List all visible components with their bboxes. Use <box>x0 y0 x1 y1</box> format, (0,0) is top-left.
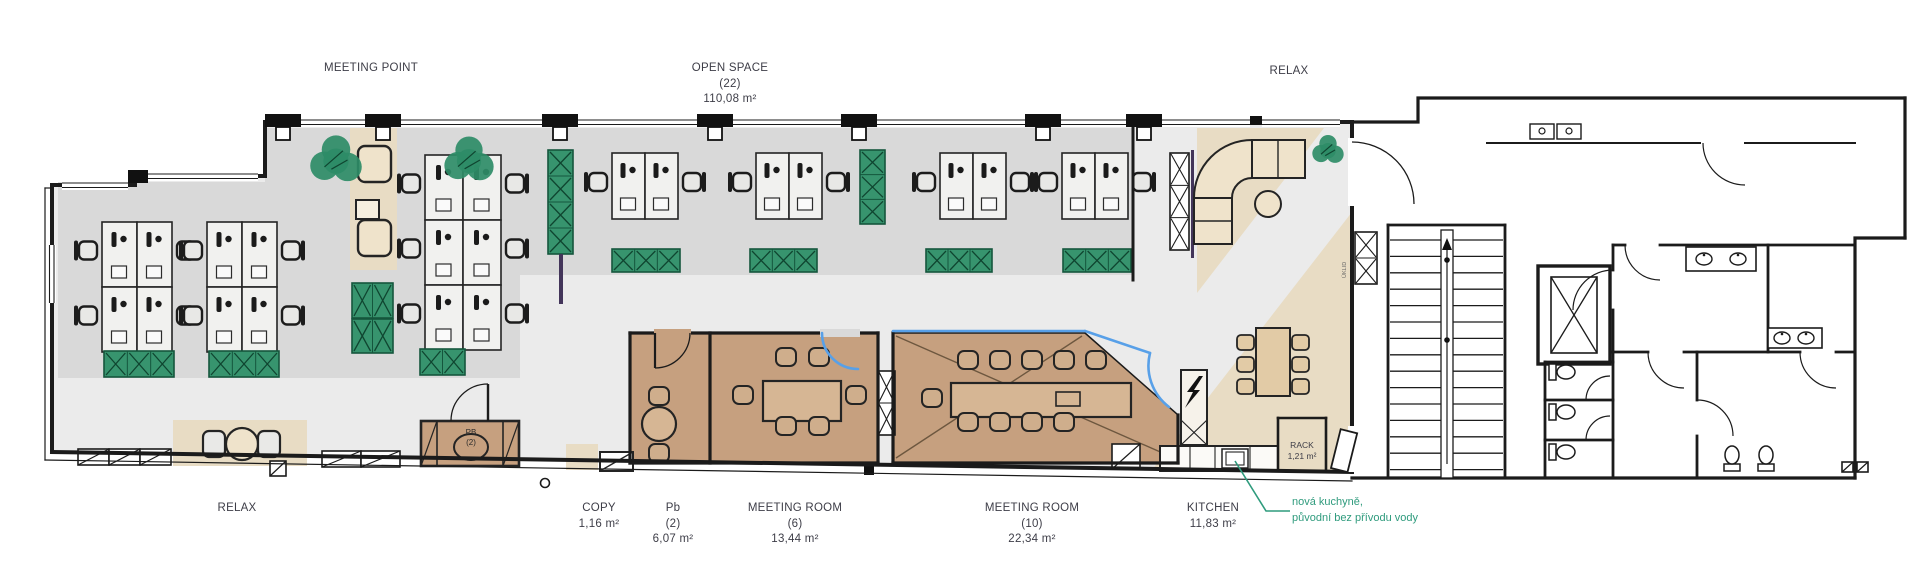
open-space-area: 110,08 m² <box>692 92 768 108</box>
label-meeting-room-6: MEETING ROOM (6) 13,44 m² <box>748 501 842 548</box>
mr6-capacity: (6) <box>748 517 842 533</box>
rack-name: RACK <box>1288 440 1317 451</box>
pb-booth-name: PB <box>466 428 477 438</box>
mr10-name: MEETING ROOM <box>985 501 1079 517</box>
mr6-area: 13,44 m² <box>748 532 842 548</box>
building-core <box>1352 98 1905 478</box>
copy-name: COPY <box>579 501 620 517</box>
mr10-capacity: (10) <box>985 517 1079 533</box>
pb-booth-capacity: (2) <box>466 438 477 448</box>
annotation-note: nová kuchyně, původní bez přívodu vody <box>1292 495 1418 526</box>
mr6-name: MEETING ROOM <box>748 501 842 517</box>
label-kitchen: KITCHEN 11,83 m² <box>1187 501 1239 532</box>
copy-area: 1,16 m² <box>579 517 620 533</box>
open-space-name: OPEN SPACE <box>692 61 768 77</box>
rack-area: 1,21 m² <box>1288 451 1317 462</box>
label-copy: COPY 1,16 m² <box>579 501 620 532</box>
floor-plan-drawing <box>0 0 1920 569</box>
label-relax-bottom: RELAX <box>218 501 257 517</box>
kitchen-area: 11,83 m² <box>1187 517 1239 533</box>
label-meeting-point: MEETING POINT <box>324 61 418 77</box>
annotation-line2: původní bez přívodu vody <box>1292 511 1418 527</box>
label-meeting-room-10: MEETING ROOM (10) 22,34 m² <box>985 501 1079 548</box>
pb-name: Pb <box>653 501 694 517</box>
kitchen-name: KITCHEN <box>1187 501 1239 517</box>
label-relax-top: RELAX <box>1270 64 1309 80</box>
pb-area: 6,07 m² <box>653 532 694 548</box>
label-utility-closet: ÚKLID <box>1342 262 1348 278</box>
floor-plan: MEETING POINT OPEN SPACE (22) 110,08 m² … <box>0 0 1920 569</box>
open-space-capacity: (22) <box>692 77 768 93</box>
annotation-line1: nová kuchyně, <box>1292 495 1418 511</box>
mr10-area: 22,34 m² <box>985 532 1079 548</box>
label-pb-room: Pb (2) 6,07 m² <box>653 501 694 548</box>
label-pb-booth: PB (2) <box>466 428 477 448</box>
pb-capacity: (2) <box>653 517 694 533</box>
label-open-space: OPEN SPACE (22) 110,08 m² <box>692 61 768 108</box>
label-rack: RACK 1,21 m² <box>1288 440 1317 462</box>
